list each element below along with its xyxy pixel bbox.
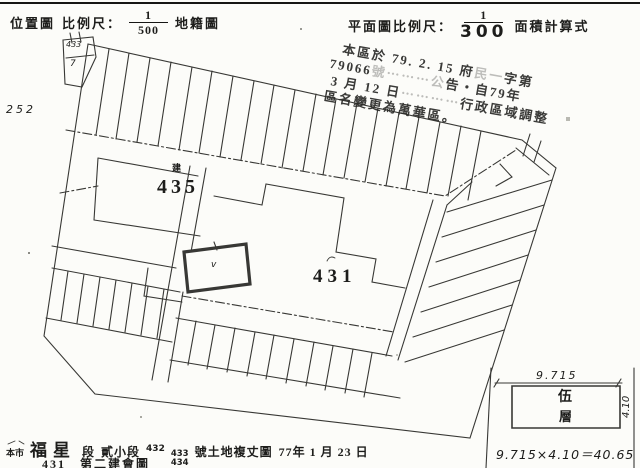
area-calculation: 9.715×4.10＝40.65	[496, 449, 634, 462]
caption-prefix: 本市	[6, 446, 24, 459]
floor-plan-label-top: 伍	[558, 391, 572, 405]
survey-date: 77年 1 月 23 日	[279, 443, 369, 460]
northeast-notch	[447, 164, 512, 205]
subject-parcel-mark: v	[211, 261, 216, 270]
margin-lot-number: 252	[6, 104, 36, 115]
lot-number-434: 434	[171, 459, 189, 468]
corner-parcel-subnumber: 7	[70, 60, 76, 69]
parcel-431-number: 431	[313, 267, 357, 286]
corner-parcel-number: 433	[66, 41, 81, 49]
lot-number-stack: 433 434	[171, 450, 189, 468]
caption-second-line: 431 第二建會圖	[42, 455, 150, 468]
scanned-survey-document: 位置圖 比例尺： 1 500 地籍圖 平面圖比例尺： 1 300 面積計算式 本…	[0, 0, 640, 468]
floor-plan-width-label: 9.715	[536, 370, 578, 381]
caption-suffix: 號土地複丈圖	[195, 443, 273, 460]
road-corridor	[152, 166, 206, 382]
parcel-435-number: 435	[157, 177, 199, 197]
floor-plan-label-bottom: 層	[559, 410, 572, 423]
lot-number-432: 432	[146, 444, 165, 454]
top-strip-band	[66, 49, 516, 200]
middle-parcels	[182, 184, 405, 332]
subject-parcel-outline	[184, 242, 250, 292]
right-strip-rows	[386, 180, 552, 362]
outer-boundary	[44, 44, 556, 438]
cadastral-map-drawing	[0, 0, 640, 468]
floor-plan-height-label: 4.10	[622, 396, 632, 418]
parcel-435-prefix: 建	[172, 164, 181, 173]
